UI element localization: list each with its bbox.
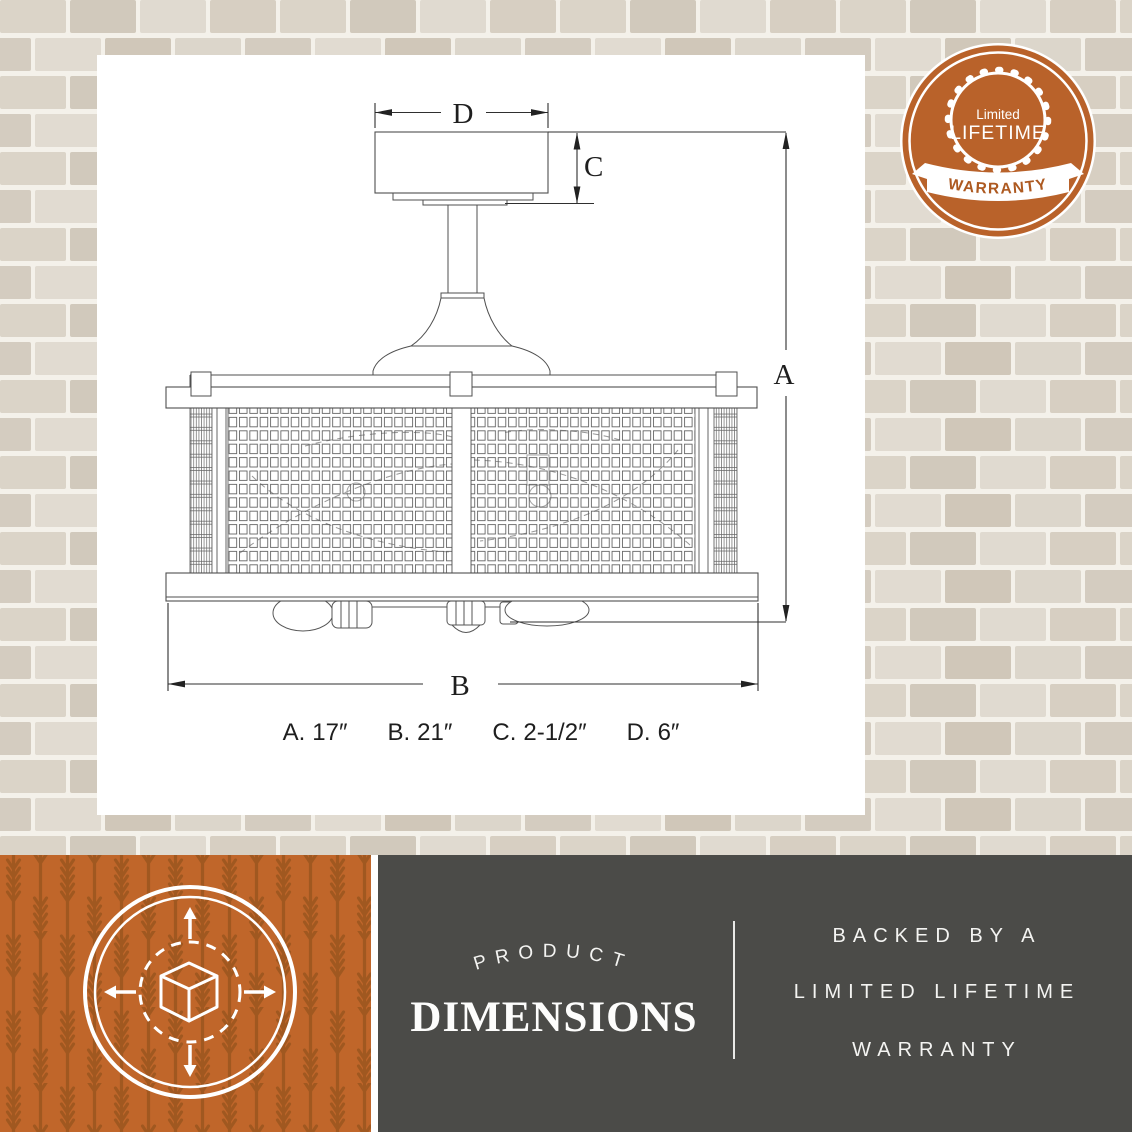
downrod-flange	[441, 293, 484, 298]
cube-arrows-icon	[85, 887, 295, 1097]
ceiling-canopy	[375, 132, 548, 193]
downrod	[448, 205, 477, 293]
lifetime-warranty-badge: Limited LIFETIME WARRANTY	[898, 41, 1098, 241]
product-dimensions-card: { "drawing": { "dim_letters": { "a": "A"…	[0, 0, 1132, 1132]
warranty-line-1: BACKED BY A	[735, 925, 1132, 948]
dimension-item-b: B.21″	[387, 719, 452, 747]
mount-dome	[373, 346, 550, 375]
svg-text:PRODUCT: PRODUCT	[471, 941, 635, 975]
dimension-item-a: A.17″	[283, 719, 348, 747]
dim-label-a: A	[774, 359, 795, 391]
dimensions-icon-tile	[0, 855, 371, 1132]
bottom-dark-panel: PRODUCT DIMENSIONS BACKED BY A LIMITED L…	[378, 855, 1132, 1132]
warranty-text-block: BACKED BY A LIMITED LIFETIME WARRANTY	[735, 855, 1132, 1132]
cage-bottom-band	[166, 573, 758, 601]
warranty-line-3: WARRANTY	[735, 1039, 1132, 1062]
canopy-step-1	[393, 193, 533, 200]
dimensions-title: DIMENSIONS	[378, 993, 730, 1042]
badge-limited-text: Limited	[976, 107, 1020, 122]
warranty-line-2: LIMITED LIFETIME	[735, 981, 1132, 1004]
dim-label-b: B	[450, 670, 469, 702]
cage-mesh	[190, 408, 737, 573]
dim-label-d: D	[453, 98, 474, 130]
dimension-item-d: D.6″	[627, 719, 680, 747]
dim-label-c: C	[584, 151, 603, 183]
badge-lifetime-text: LIFETIME	[950, 122, 1046, 144]
canopy-step-2	[423, 200, 507, 205]
dimension-item-c: C.2-1/2″	[492, 719, 586, 747]
dimension-values-row: A.17″ B.21″ C.2-1/2″ D.6″	[97, 719, 865, 747]
drawing-panel: D C A B A.17″ B.21″ C.2-1/2″ D.6″	[97, 55, 865, 815]
fan-technical-drawing: D C A B	[97, 55, 865, 815]
arched-product-text: PRODUCT	[403, 883, 703, 1003]
bottom-info-bar: PRODUCT DIMENSIONS BACKED BY A LIMITED L…	[0, 855, 1132, 1132]
mount-bell	[411, 298, 512, 346]
